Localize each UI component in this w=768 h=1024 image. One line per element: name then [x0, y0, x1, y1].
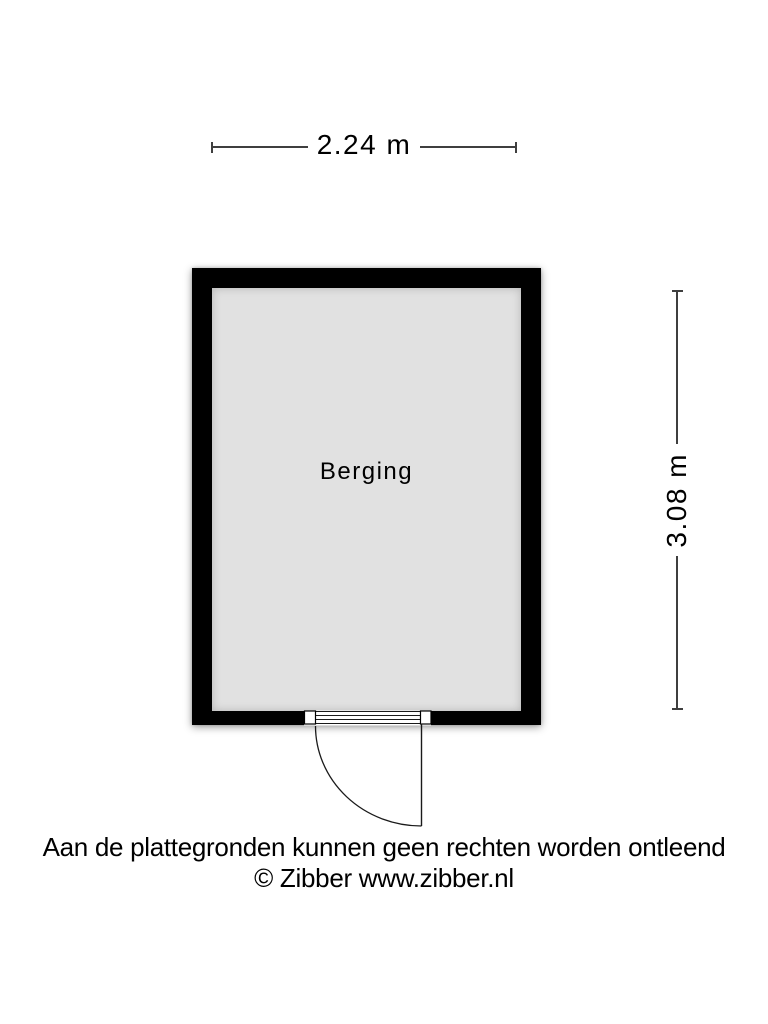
height-dimension-label: 3.08 m	[661, 453, 693, 548]
door-jamb-right	[421, 711, 432, 724]
dimension-line-left	[213, 146, 308, 148]
door	[295, 700, 460, 840]
room-berging: Berging	[192, 268, 541, 725]
dimension-line-top	[676, 292, 678, 444]
dimension-line-right	[420, 146, 515, 148]
door-jamb-left	[305, 711, 316, 724]
footer: Aan de plattegronden kunnen geen rechten…	[0, 832, 768, 894]
disclaimer-text: Aan de plattegronden kunnen geen rechten…	[0, 832, 768, 863]
width-dimension-label: 2.24 m	[317, 129, 412, 161]
copyright-text: © Zibber www.zibber.nl	[0, 863, 768, 894]
room-label: Berging	[212, 458, 521, 486]
height-dimension: 3.08 m	[663, 290, 691, 710]
room-floor: Berging	[212, 288, 521, 711]
door-swing-arc	[316, 726, 422, 826]
dimension-line-bottom	[676, 556, 678, 708]
dimension-tick-right	[515, 142, 517, 153]
width-dimension: 2.24 m	[211, 133, 517, 161]
dimension-tick-bottom	[672, 708, 683, 710]
floorplan-canvas: 2.24 m Berging 3.08 m Aan de plattegrond…	[0, 0, 768, 1024]
